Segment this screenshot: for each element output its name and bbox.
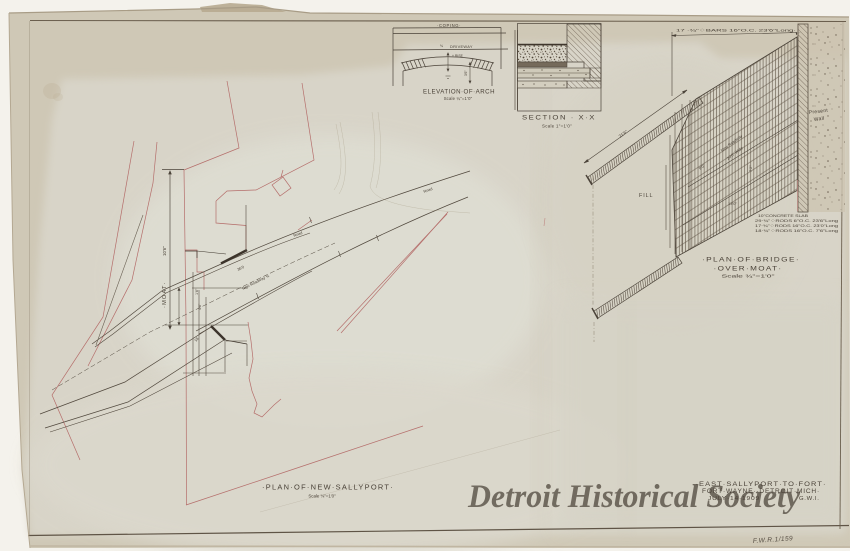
svg-text:Scale ⅛"=1'0": Scale ⅛"=1'0" [308, 494, 336, 499]
svg-text:4'6": 4'6" [198, 303, 202, 310]
svg-text:SECTION · X·X: SECTION · X·X [522, 115, 596, 122]
svg-text:FILL: FILL [639, 193, 653, 199]
svg-text:·OVER·MOAT·: ·OVER·MOAT· [714, 266, 783, 273]
svg-text:+ RISE: + RISE [452, 54, 464, 58]
svg-text:Scale ¾"=1'0": Scale ¾"=1'0" [722, 274, 776, 279]
svg-text:10'6": 10'6" [162, 246, 167, 256]
svg-text:DRIVEWAY: DRIVEWAY [450, 44, 473, 49]
svg-text:3'6": 3'6" [464, 70, 468, 76]
svg-text:·PLAN·OF·BRIDGE·: ·PLAN·OF·BRIDGE· [702, 257, 800, 264]
svg-text:G.W.I.: G.W.I. [799, 496, 820, 502]
svg-text:Scale 1"=1'0": Scale 1"=1'0" [542, 124, 572, 129]
svg-text:¾: ¾ [440, 44, 443, 48]
svg-text:1'6": 1'6" [195, 288, 199, 295]
svg-text:18·¾"♢RODS 16"O.C. 7'6"Long: 18·¾"♢RODS 16"O.C. 7'6"Long [755, 228, 838, 233]
svg-text:7'2": 7'2" [748, 165, 753, 172]
svg-text:Scale ¼"=1'0": Scale ¼"=1'0" [444, 96, 473, 101]
svg-text:·COPING·: ·COPING· [437, 23, 461, 28]
svg-text:17 ·¾"♢BARS 16"O.C. 23'6"Long·: 17 ·¾"♢BARS 16"O.C. 23'6"Long· [676, 28, 796, 33]
svg-text:·PLAN·OF·NEW·SALLYPORT·: ·PLAN·OF·NEW·SALLYPORT· [262, 485, 394, 492]
svg-text:Detroit Historical Society: Detroit Historical Society [467, 479, 801, 515]
svg-text:·MOAT·: ·MOAT· [162, 281, 168, 308]
svg-text:ELEVATION·OF·ARCH: ELEVATION·OF·ARCH [423, 90, 495, 96]
svg-text:13'0": 13'0" [728, 201, 737, 206]
